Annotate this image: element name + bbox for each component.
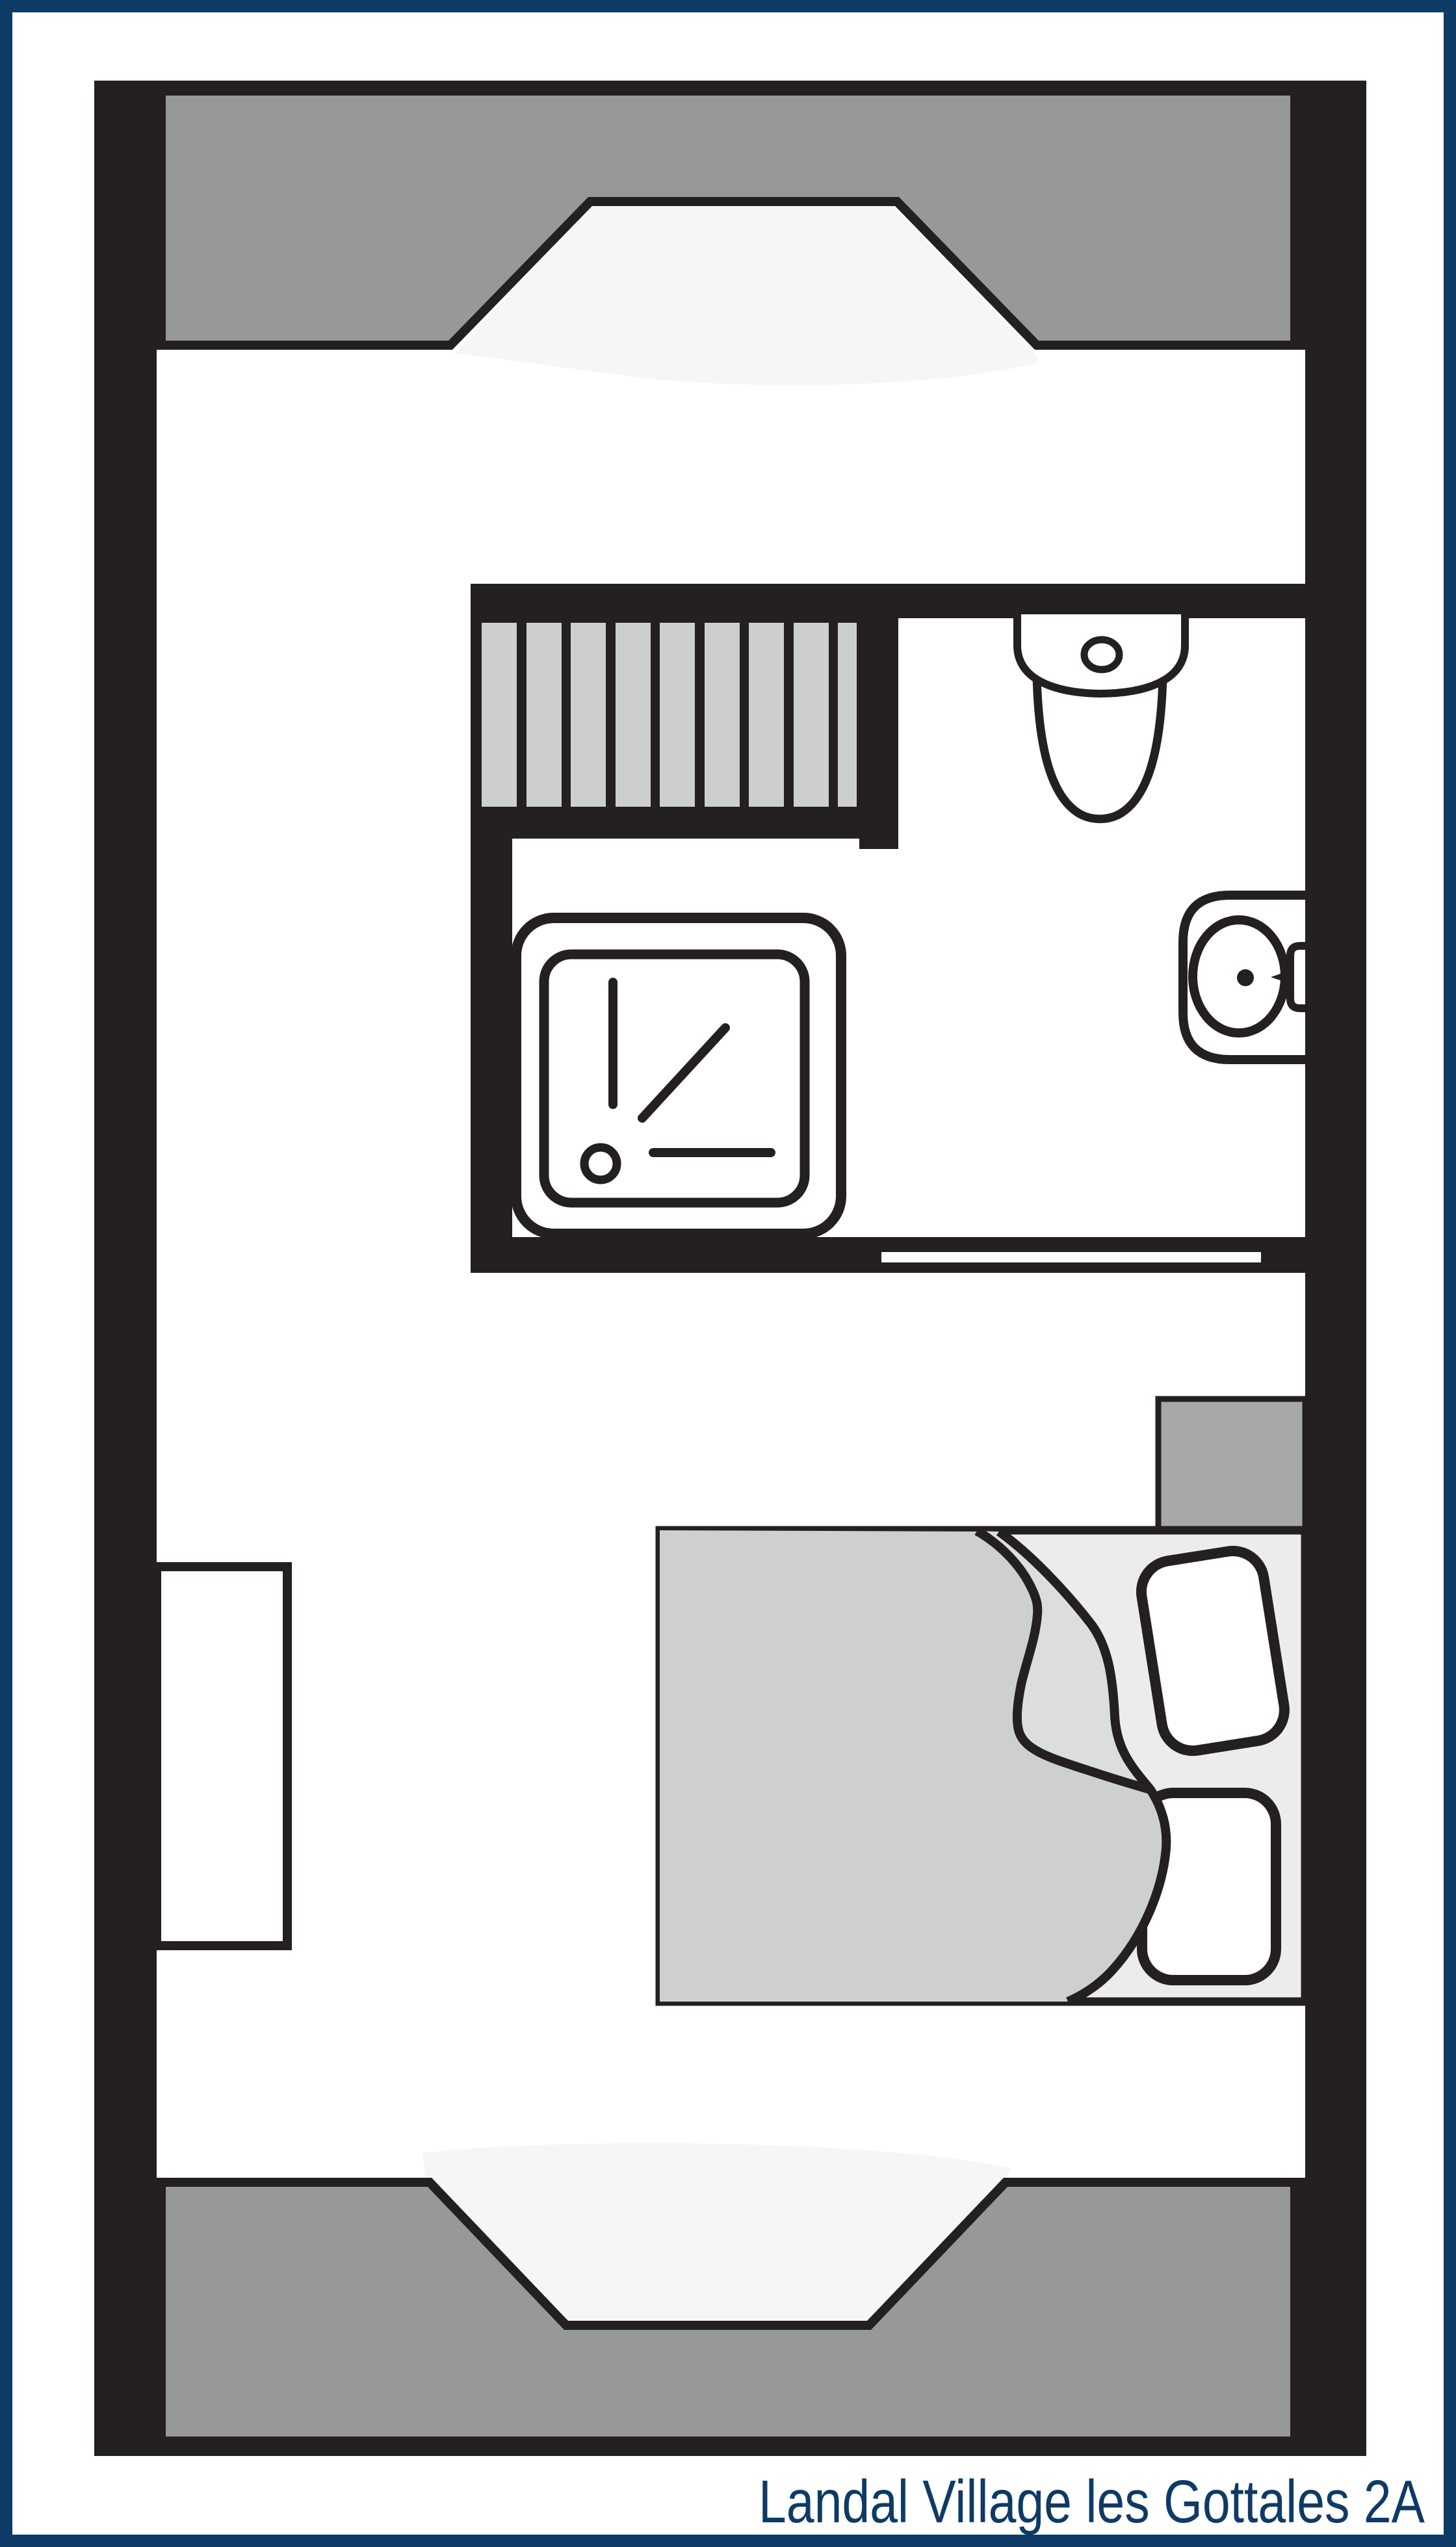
svg-text:Landal Village les Gottales 2A: Landal Village les Gottales 2A — [759, 2468, 1425, 2535]
